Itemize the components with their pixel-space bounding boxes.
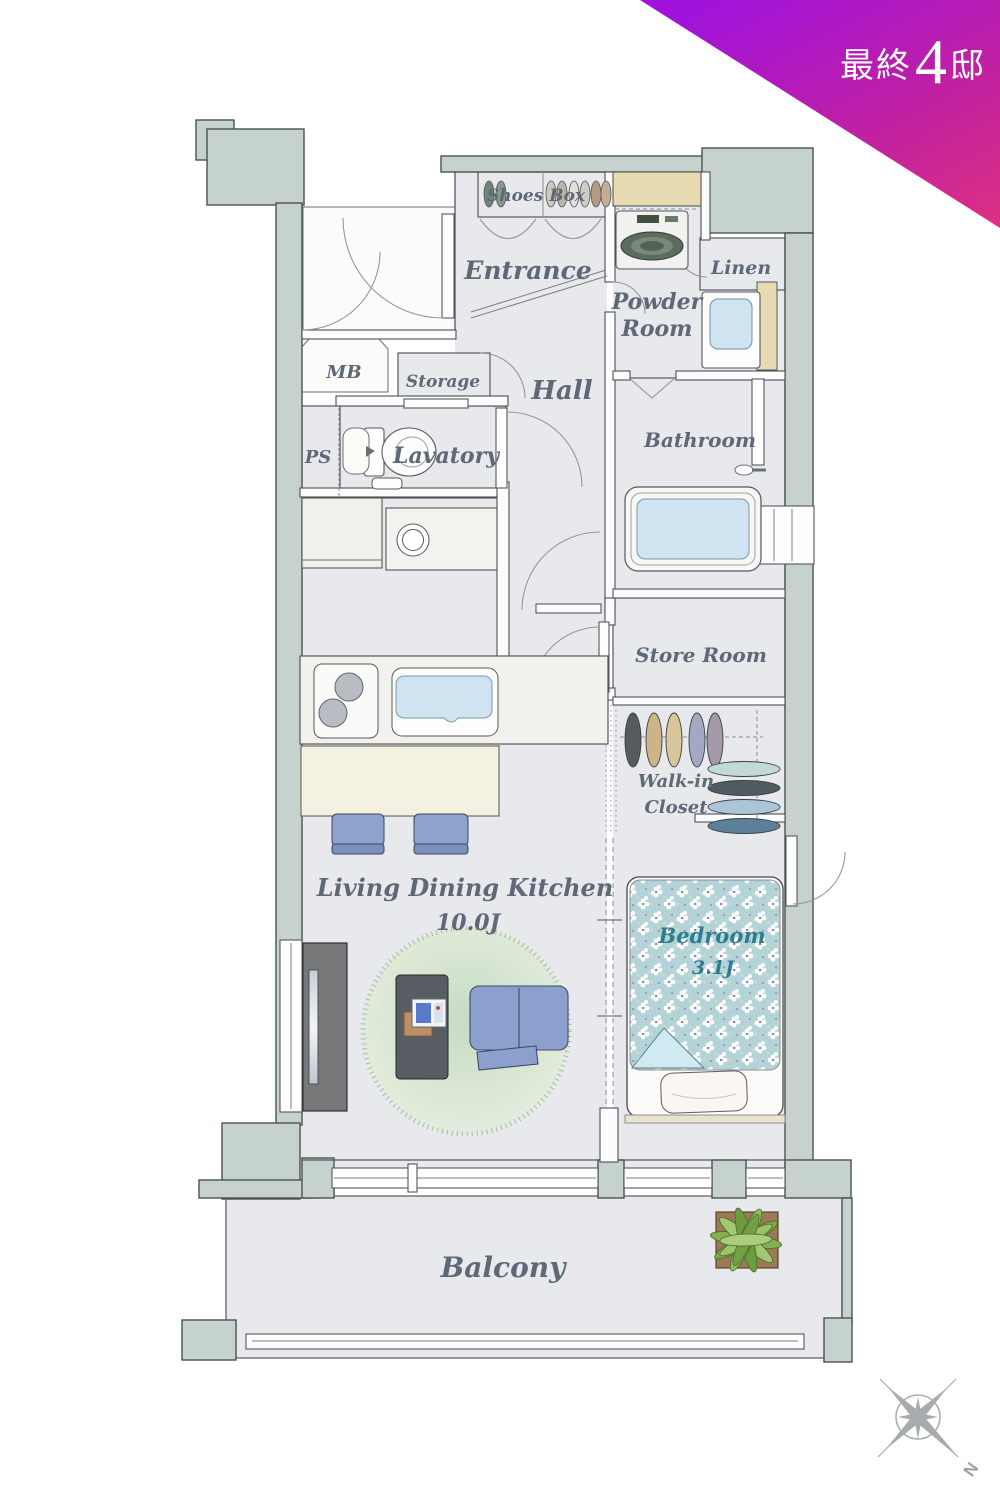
badge-text: 最終 4 邸 [840, 30, 986, 94]
label-ldk: Living Dining Kitchen [316, 873, 614, 902]
badge-text-prefix: 最終 [840, 38, 912, 87]
label-entrance: Entrance [463, 256, 591, 285]
compass: N [878, 1379, 982, 1480]
label-lavatory: Lavatory [392, 443, 501, 469]
label-bedroom-size: 3.1J [692, 957, 736, 979]
bed [625, 877, 785, 1123]
label-storage: Storage [406, 372, 480, 392]
refrigerator-space [302, 498, 382, 568]
entry-porch-floor [303, 207, 455, 332]
plant [709, 1206, 782, 1274]
label-hall: Hall [530, 376, 592, 406]
label-linen: Linen [710, 257, 771, 279]
bathroom-window [758, 506, 814, 564]
bath-faucet [735, 465, 753, 475]
bathtub [625, 487, 761, 571]
tv [309, 970, 318, 1084]
badge-text-number: 4 [915, 30, 947, 94]
vanity-sink [702, 282, 777, 370]
label-shoes-box: Shoes Box [487, 186, 586, 206]
ps-sink [343, 428, 369, 474]
pillow [660, 1071, 747, 1114]
label-ldk-size: 10.0J [436, 910, 502, 936]
dining-table [301, 746, 499, 816]
lavatory-sliding-door [404, 399, 468, 408]
label-bedroom: Bedroom [657, 923, 765, 948]
bathroom-door-pocket [752, 379, 764, 465]
washing-machine [613, 172, 701, 269]
badge-text-suffix: 邸 [950, 38, 986, 87]
label-store-room: Store Room [635, 643, 767, 667]
floor-plan-svg: N Shoes Box Entrance Powder Room Linen M… [0, 0, 1000, 1500]
floor-plan-page: N Shoes Box Entrance Powder Room Linen M… [0, 0, 1000, 1500]
compass-north-label: N [959, 1459, 982, 1480]
entrance-door [442, 214, 454, 318]
label-mb: MB [325, 362, 361, 383]
bedroom-door [786, 836, 797, 906]
hall-ldk-door [536, 604, 601, 613]
label-bathroom: Bathroom [643, 428, 756, 452]
label-ps: PS [304, 447, 332, 468]
label-powder-room: Powder [611, 289, 704, 315]
label-walkin-closet: Closet [644, 797, 708, 818]
tv-board [303, 943, 347, 1111]
label-powder-room: Room [621, 316, 693, 342]
label-walkin-closet: Walk-in [638, 771, 714, 792]
kitchen-counter [300, 656, 608, 744]
label-balcony: Balcony [440, 1251, 568, 1284]
